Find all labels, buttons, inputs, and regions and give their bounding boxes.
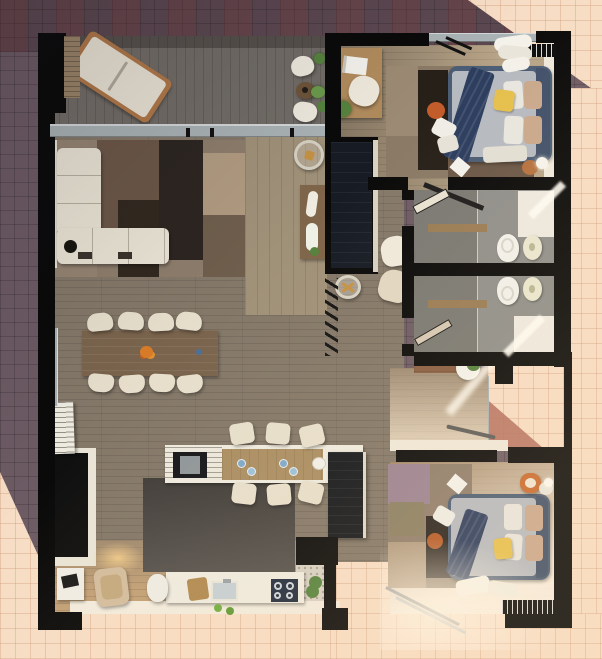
cutting-board <box>187 577 210 602</box>
privacy-screen-timber <box>64 36 80 98</box>
terrace-plant <box>314 53 325 64</box>
wall-bedroom2-bottom <box>505 612 572 628</box>
pillow-beige <box>524 81 542 109</box>
tall-fridge-unit <box>328 452 366 538</box>
bathroom1-vanity-shelf <box>428 224 487 232</box>
wall-right-upper <box>554 31 571 367</box>
terrace-plant <box>311 86 325 98</box>
wall-bedroom1-top <box>341 33 429 46</box>
table-decor-blue <box>196 349 202 355</box>
dining-chair <box>117 311 144 331</box>
bar-stool <box>266 483 292 506</box>
wall-bedroom2-right <box>554 447 572 628</box>
burner <box>286 582 294 590</box>
media-wardrobe-navy-top <box>331 142 372 268</box>
decor-ladder <box>325 278 338 356</box>
toilet-seat <box>501 238 514 253</box>
floor-plan-render <box>0 0 602 659</box>
toilet-seat <box>501 286 514 301</box>
wall-bottom-left-corner <box>38 612 82 630</box>
wall-mid-c <box>322 608 348 630</box>
console-plant <box>310 247 319 256</box>
glass-side-table <box>294 140 324 170</box>
bed-foot-blanket <box>483 145 528 163</box>
island-sink-basin <box>180 456 200 474</box>
bathroom2-bidet <box>523 277 542 301</box>
faucet <box>223 579 231 583</box>
media-wardrobe-divider <box>325 137 378 274</box>
bathroom2-toilet <box>497 277 519 305</box>
pillow-yellow <box>493 89 516 113</box>
rug-patch <box>388 464 430 504</box>
burner <box>286 592 293 599</box>
bar-stool <box>265 422 291 445</box>
sideboard-black-top <box>52 453 88 557</box>
bathroom2-vanity-shelf <box>428 300 487 308</box>
white-plate <box>312 457 326 470</box>
media-wardrobe-white-edge <box>373 140 378 272</box>
dining-chair <box>86 312 114 333</box>
rug-patch <box>390 502 424 536</box>
wall-bathrooms-left-c <box>402 344 414 356</box>
bar-stool <box>231 482 257 506</box>
wall-left <box>38 33 55 628</box>
wall-bedroom1-bottom-a <box>368 177 408 190</box>
bidet-drain <box>529 285 535 293</box>
sofa-l-shaped <box>57 148 101 236</box>
wall-bathrooms-middle <box>402 263 556 276</box>
pillow-white <box>504 504 522 530</box>
orange-armchair <box>520 473 541 493</box>
console-decor-squiggle <box>305 190 319 217</box>
blue-glass <box>279 459 288 468</box>
wall-bedroom1-topright-stub <box>536 31 556 43</box>
wall-bedroom2-top-a <box>396 450 497 462</box>
burner <box>274 592 281 599</box>
bathroom1-toilet <box>497 234 519 262</box>
sofa-tray <box>118 252 132 259</box>
hob-stove <box>271 579 298 602</box>
armchair-cushion <box>525 478 536 488</box>
pillow-white <box>503 116 523 145</box>
blue-glass <box>289 467 298 476</box>
wicker-cushion <box>100 574 124 600</box>
fruit-bowl <box>140 346 153 358</box>
wall-bathrooms-bottom <box>414 352 572 366</box>
bidet-drain <box>529 243 535 251</box>
wall-bedroom1-bottom-b <box>448 177 556 190</box>
bistro-cup <box>302 87 308 93</box>
burner <box>274 582 282 590</box>
bedside-lamp <box>544 478 553 487</box>
dining-chair <box>148 312 175 331</box>
drum-stool <box>147 574 168 602</box>
table-tray <box>61 573 79 588</box>
rug-patch <box>203 215 245 277</box>
dining-chair <box>149 373 176 392</box>
wall-divider-top <box>325 33 341 141</box>
worktop-sink <box>211 581 238 601</box>
bedroom1-curtains <box>492 34 536 74</box>
gold-decor <box>304 150 316 162</box>
herb-pots <box>214 604 222 612</box>
wc-plant <box>309 576 322 589</box>
bedroom2-sun-wash <box>380 540 560 650</box>
sofa-tray <box>78 252 92 259</box>
bedroom2-sliding-wardrobe <box>502 600 554 614</box>
decor-tray <box>335 275 361 299</box>
wall-bathrooms-left-a <box>402 190 414 200</box>
bar-stool <box>229 421 256 445</box>
island-sink-unit <box>173 452 207 478</box>
rug-patch <box>386 66 418 136</box>
herb-pots <box>226 607 234 615</box>
floor-lamp <box>64 240 77 253</box>
nook-side-table <box>57 568 84 600</box>
balustrade-post <box>290 128 294 137</box>
glass-balustrade <box>50 124 327 137</box>
pillow-beige <box>525 505 543 531</box>
wall-bathrooms-bottom-stub <box>495 366 513 384</box>
bedside-lamp <box>536 157 548 169</box>
kitchen-worktop <box>166 572 304 603</box>
orange-pouf <box>427 102 445 119</box>
balustrade-post <box>210 128 214 137</box>
blue-glass <box>247 467 256 476</box>
wicker-armchair <box>93 566 130 608</box>
laptop <box>342 56 368 76</box>
blue-glass <box>237 459 246 468</box>
wall-patio-right <box>564 366 572 450</box>
pillow-beige <box>524 116 542 144</box>
rug-patch <box>203 153 245 215</box>
console-table <box>300 185 326 259</box>
balustrade-post <box>186 128 190 137</box>
dining-table <box>82 330 218 376</box>
bathroom1-bidet <box>523 235 542 260</box>
